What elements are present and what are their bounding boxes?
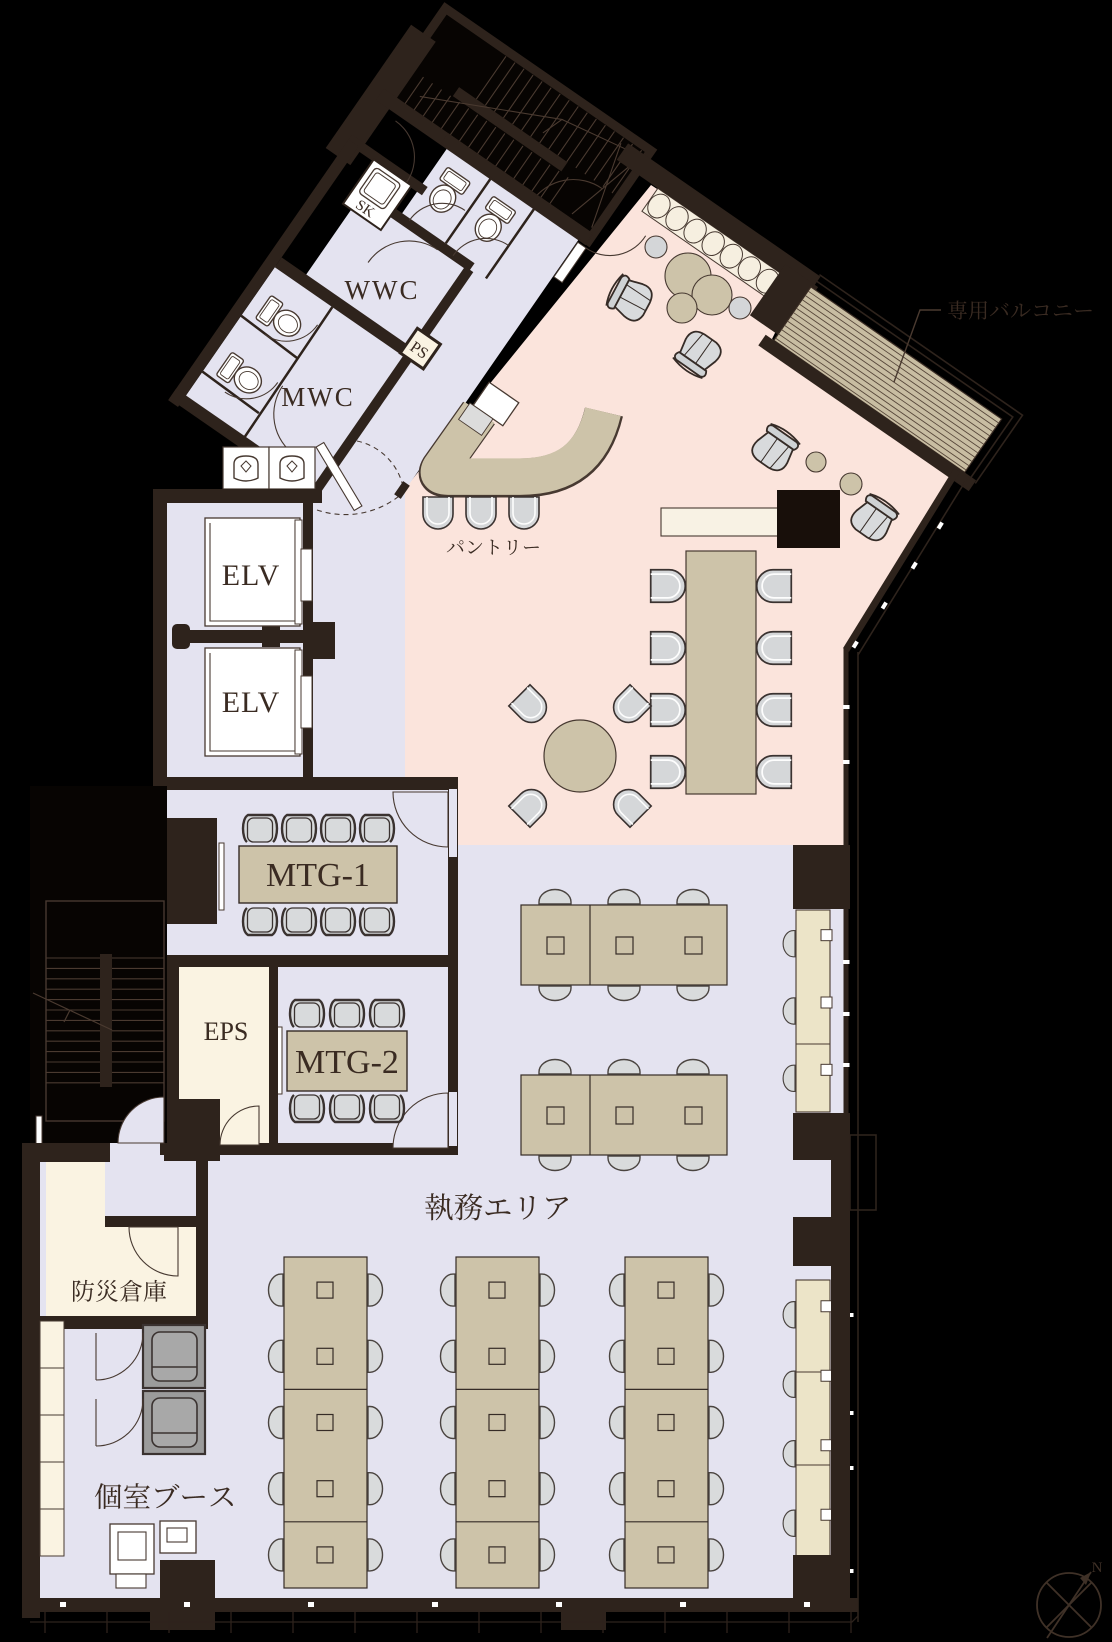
svg-text:MTG-2: MTG-2 — [295, 1044, 399, 1081]
svg-text:ELV: ELV — [222, 686, 281, 719]
svg-text:MWC: MWC — [281, 382, 355, 412]
svg-text:MTG-1: MTG-1 — [266, 857, 370, 894]
svg-text:N: N — [1092, 1560, 1103, 1576]
svg-text:ELV: ELV — [222, 559, 281, 592]
svg-text:WWC: WWC — [345, 275, 420, 305]
svg-text:EPS: EPS — [204, 1017, 249, 1046]
